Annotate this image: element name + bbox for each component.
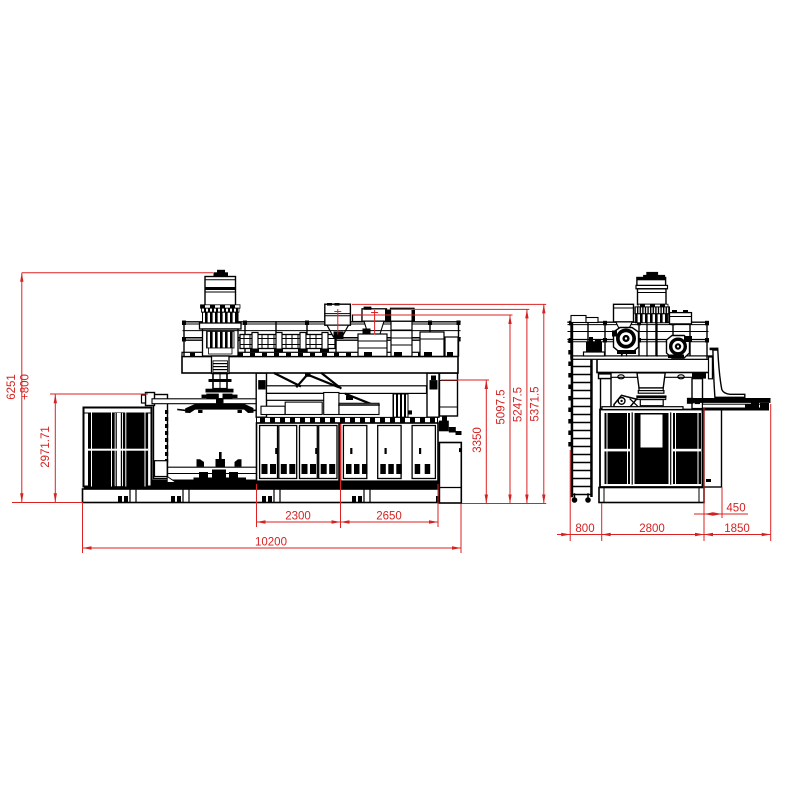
svg-text:10200: 10200: [255, 537, 287, 549]
svg-text:2650: 2650: [376, 511, 402, 523]
svg-text:1850: 1850: [724, 523, 750, 535]
svg-text:450: 450: [726, 503, 745, 515]
svg-text:2300: 2300: [285, 511, 311, 523]
svg-text:5371.5: 5371.5: [529, 386, 541, 421]
svg-text:6251: 6251: [6, 374, 18, 400]
svg-text:2800: 2800: [639, 523, 665, 535]
svg-text:2971.71: 2971.71: [40, 426, 52, 468]
svg-text:5097.5: 5097.5: [496, 389, 508, 424]
svg-text:800: 800: [575, 523, 594, 535]
svg-text:5247.5: 5247.5: [512, 387, 524, 422]
svg-text:+800: +800: [20, 374, 32, 400]
svg-text:3350: 3350: [472, 427, 484, 453]
